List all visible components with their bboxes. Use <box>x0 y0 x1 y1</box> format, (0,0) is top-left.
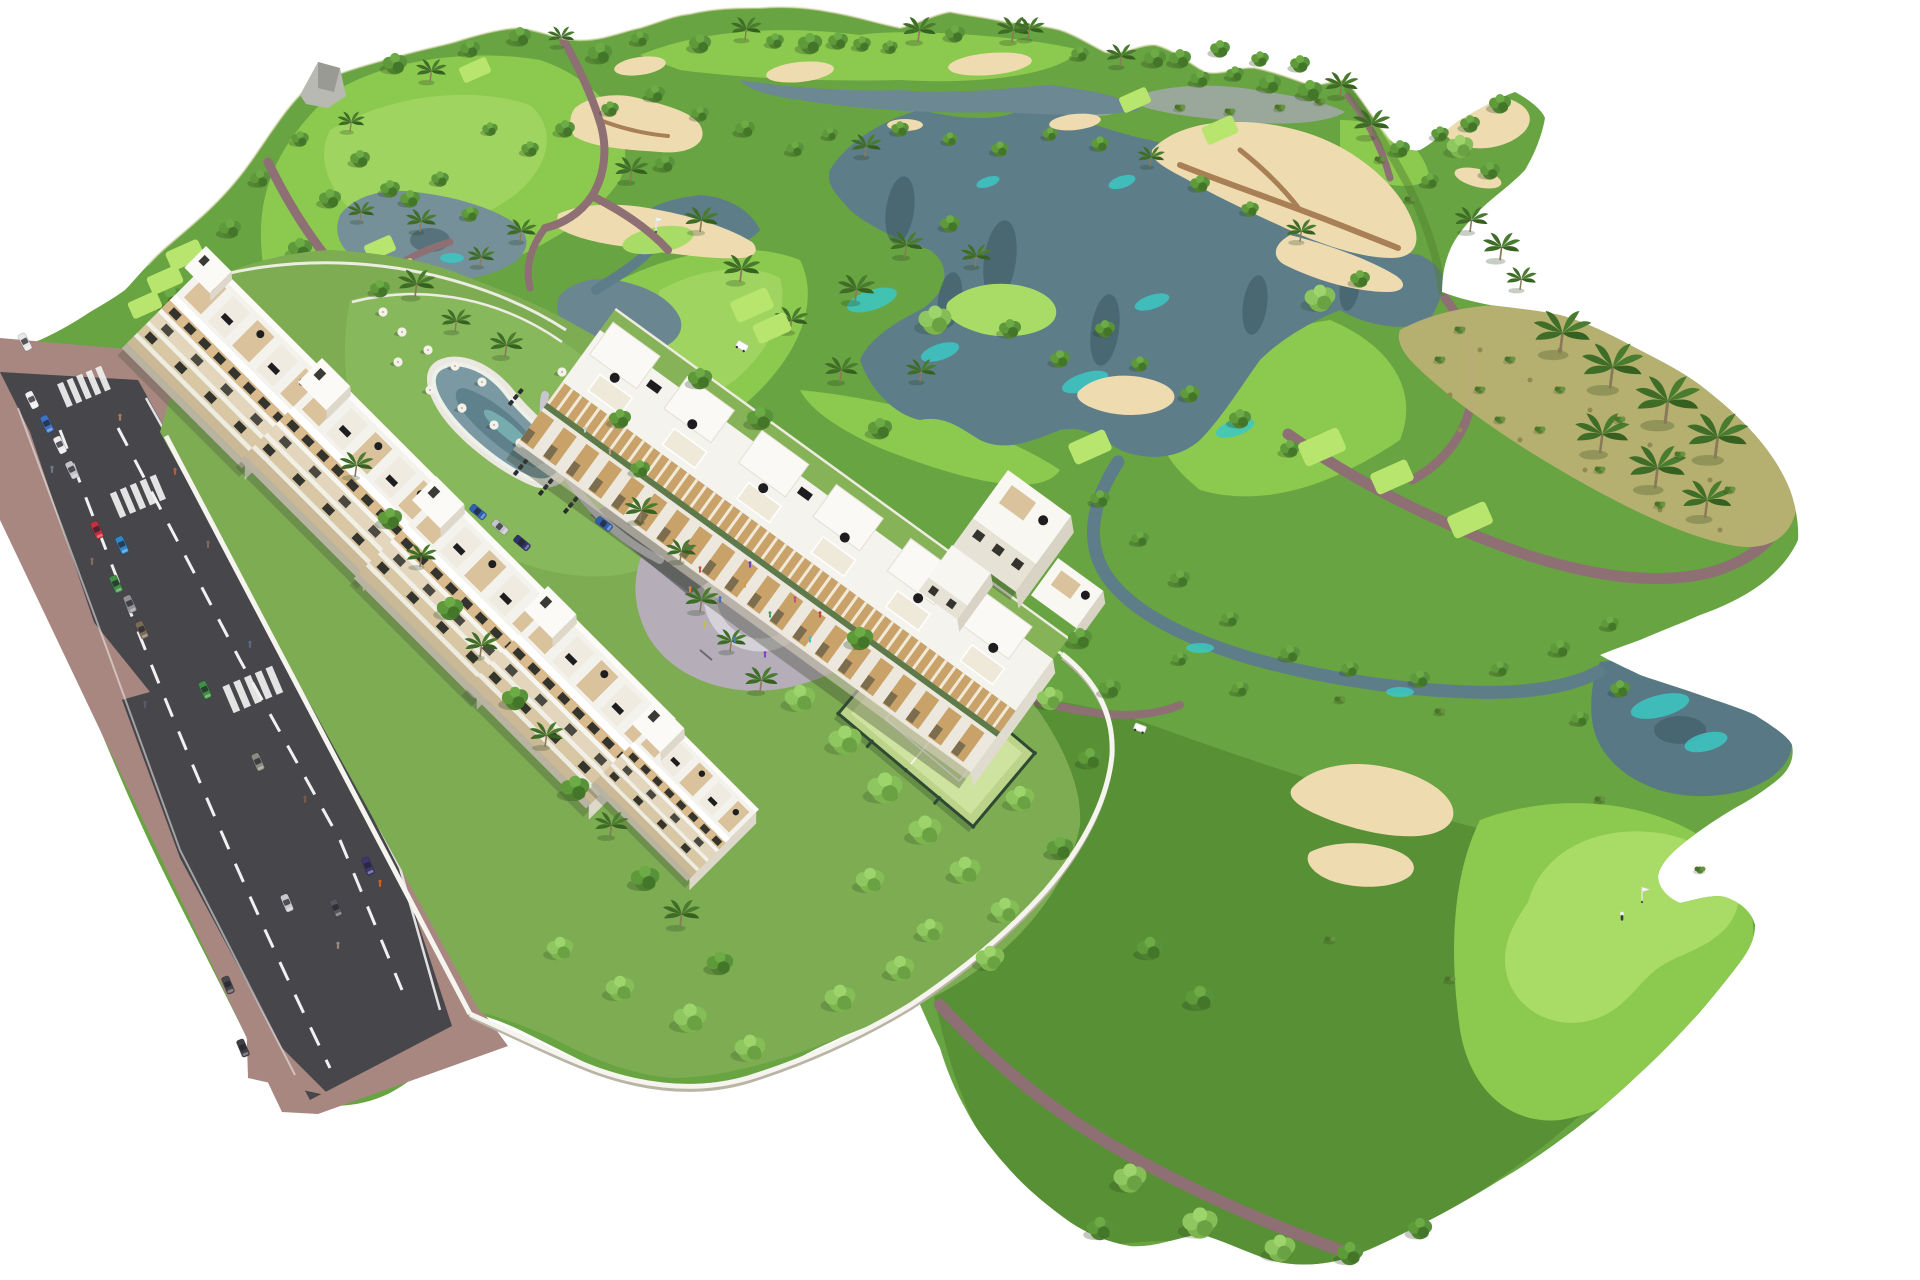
shrub-icon <box>1593 467 1606 475</box>
shrub-icon <box>1503 357 1516 365</box>
shrub-icon <box>1223 109 1236 117</box>
shrub-icon <box>1533 427 1546 435</box>
shrub-icon <box>1373 157 1386 165</box>
shrub-icon <box>1333 697 1346 705</box>
shrub-icon <box>1443 977 1456 985</box>
shrub-icon <box>1313 99 1326 107</box>
shrub-icon <box>1693 867 1706 875</box>
shrub-icon <box>1433 709 1446 717</box>
shrub-icon <box>1403 197 1416 205</box>
shrub-icon <box>1323 937 1336 945</box>
aerial-render <box>0 0 1920 1280</box>
shrub-icon <box>1613 417 1626 425</box>
shrub-icon <box>1593 797 1606 805</box>
shrub-icon <box>1273 105 1286 113</box>
shrub-icon <box>1433 357 1446 365</box>
shrub-icon <box>1653 502 1666 510</box>
golfer-layer <box>1620 912 1624 921</box>
shrub-icon <box>1673 452 1686 460</box>
shrub-icon <box>1173 105 1186 113</box>
shrub-icon <box>1553 387 1566 395</box>
shrub-icon <box>1723 487 1736 495</box>
shrub-icon <box>1473 387 1486 395</box>
golfer <box>1620 912 1624 921</box>
shrub-icon <box>1453 327 1466 335</box>
shrub-icon <box>1493 417 1506 425</box>
